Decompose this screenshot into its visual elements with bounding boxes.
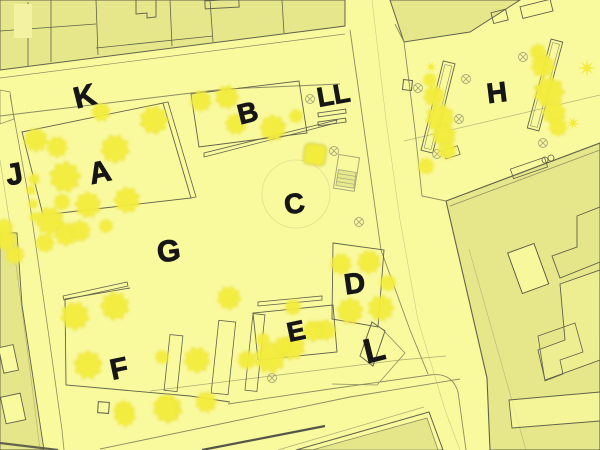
- svg-text:D: D: [342, 267, 367, 302]
- svg-text:LL: LL: [315, 77, 353, 112]
- svg-text:H: H: [485, 76, 509, 109]
- svg-text:G: G: [155, 234, 183, 270]
